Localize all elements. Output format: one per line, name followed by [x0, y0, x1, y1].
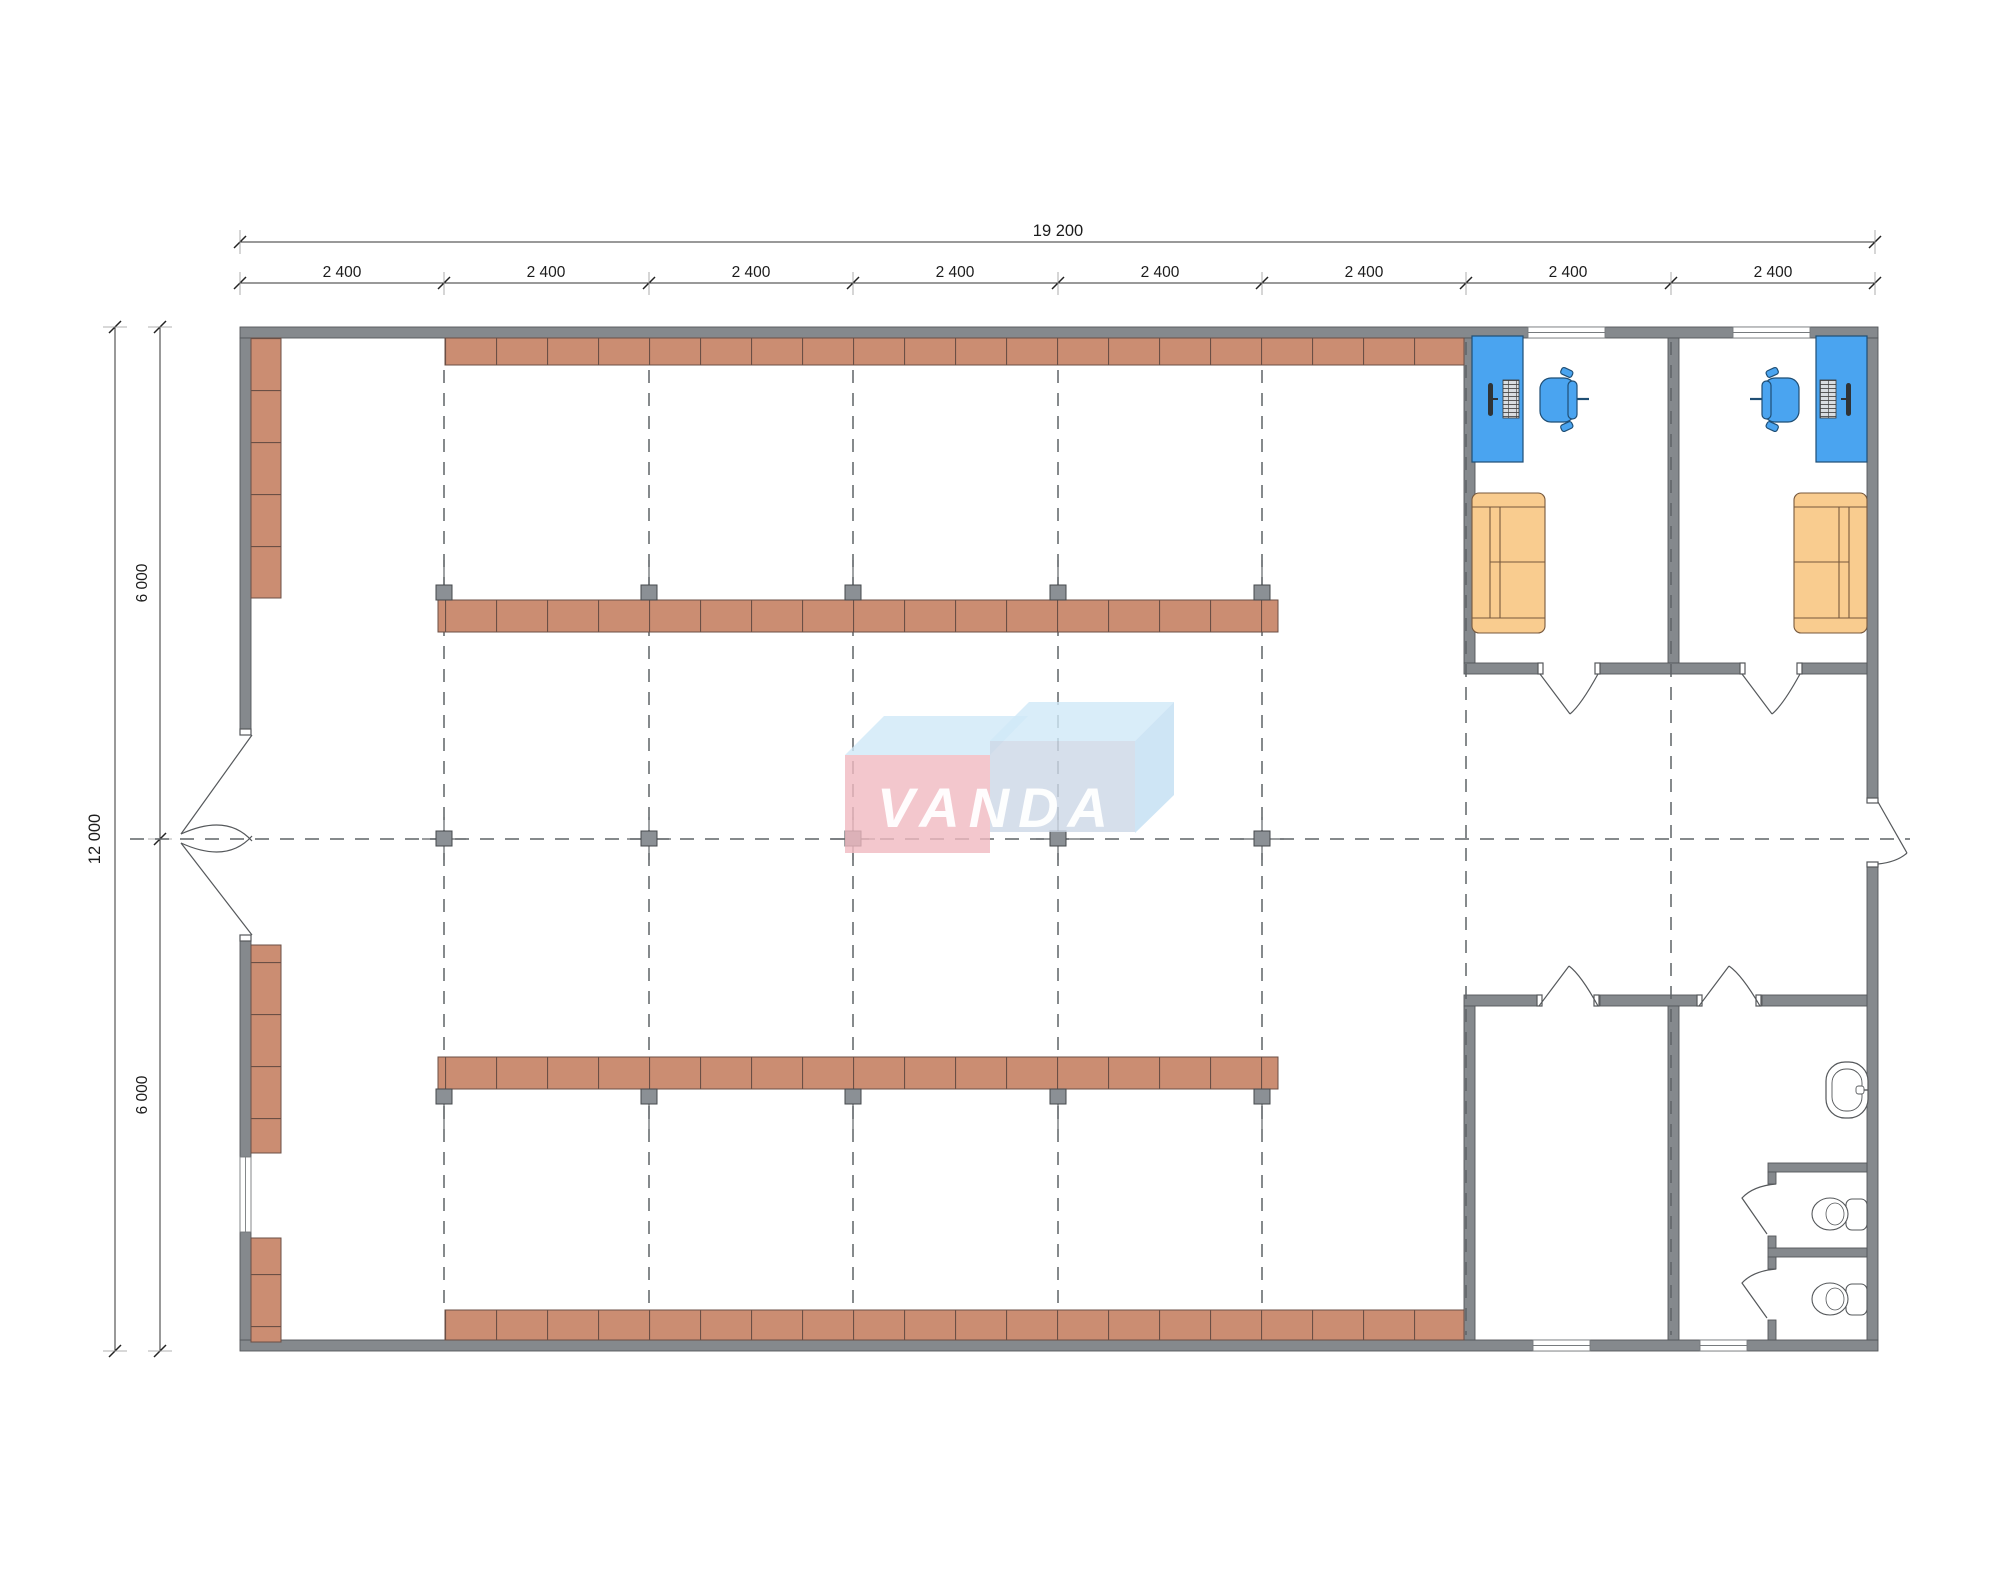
window-bottom-2	[1700, 1340, 1747, 1351]
wall-bottom-divider	[1668, 1006, 1679, 1340]
stall-2-stub-bottom	[1768, 1320, 1776, 1340]
wall-offices-bottom-a	[1464, 663, 1538, 674]
stall-1-stub-top	[1768, 1172, 1776, 1184]
stall-1-stub-bottom	[1768, 1236, 1776, 1248]
shelf-bottom-wall	[445, 1310, 1464, 1340]
shelf-island-lower	[438, 1057, 1278, 1089]
office1-furniture	[1472, 336, 1589, 633]
wall-bottomrooms-top-a	[1464, 995, 1537, 1006]
office1-sofa	[1472, 493, 1545, 633]
wall-top	[240, 327, 1878, 338]
office2-sofa	[1794, 493, 1867, 633]
window-office2	[1733, 327, 1810, 338]
wall-office-divider	[1668, 338, 1679, 663]
dim-seg-2: 2 400	[527, 264, 566, 281]
storage-door	[1537, 966, 1599, 1006]
wall-stall-2	[1768, 1248, 1867, 1257]
wall-offices-bottom-c	[1802, 663, 1867, 674]
wall-bottomrooms-top-c	[1762, 995, 1867, 1006]
dim-left-seg-2: 6 000	[134, 1075, 151, 1114]
shelf-island-upper	[438, 600, 1278, 632]
office1-chair	[1540, 367, 1589, 433]
office2-computer-icon	[1820, 380, 1851, 418]
wall-bottomrooms-top-b	[1600, 995, 1697, 1006]
office1-door	[1538, 663, 1600, 714]
dim-seg-7: 2 400	[1549, 264, 1588, 281]
windows	[240, 327, 1810, 1351]
dim-seg-4: 2 400	[936, 264, 975, 281]
dim-left-seg-1: 6 000	[134, 563, 151, 602]
shelf-left-lower	[251, 1238, 281, 1342]
stall-2-stub-top	[1768, 1257, 1776, 1269]
dim-seg-6: 2 400	[1345, 264, 1384, 281]
wall-right-upper	[1867, 338, 1878, 798]
wall-left-upper	[240, 338, 251, 729]
toilet-1-icon	[1812, 1198, 1867, 1230]
dim-seg-5: 2 400	[1141, 264, 1180, 281]
stall2-door	[1742, 1269, 1776, 1318]
wall-left-lower-a	[240, 941, 251, 1157]
office2-furniture	[1750, 336, 1867, 633]
floor-plan-page: 19 200 2 400 2 400 2 400 2 400 2 400 2 4…	[0, 0, 2000, 1574]
office1-computer-icon	[1488, 380, 1519, 418]
shelf-top-wall	[445, 338, 1464, 365]
wall-bottom	[240, 1340, 1878, 1351]
logo-text: VANDA	[877, 776, 1117, 839]
shelf-left-mid	[251, 945, 281, 1153]
sink-icon	[1826, 1062, 1868, 1118]
dim-seg-3: 2 400	[732, 264, 771, 281]
office2-chair	[1750, 367, 1799, 433]
wall-stall-1	[1768, 1163, 1867, 1172]
dim-seg-8: 2 400	[1754, 264, 1793, 281]
restroom-fixtures	[1812, 1062, 1868, 1315]
restroom-door	[1697, 966, 1761, 1006]
shelf-left-upper	[251, 338, 281, 598]
wall-left-lower-b	[240, 1232, 251, 1340]
toilet-2-icon	[1812, 1283, 1867, 1315]
entrance-double-door	[181, 729, 252, 941]
window-bottom-1	[1533, 1340, 1590, 1351]
office2-door	[1740, 663, 1802, 714]
dim-total-height: 12 000	[86, 814, 104, 864]
side-exit-door	[1867, 798, 1907, 867]
wall-offices-bottom-b	[1600, 663, 1740, 674]
floor-plan-drawing: 19 200 2 400 2 400 2 400 2 400 2 400 2 4…	[0, 0, 2000, 1574]
stall1-door	[1742, 1184, 1776, 1234]
dim-seg-1: 2 400	[323, 264, 362, 281]
vanda-watermark: VANDA	[845, 702, 1174, 853]
wall-right-lower	[1867, 867, 1878, 1340]
window-left	[240, 1157, 251, 1232]
window-office1	[1528, 327, 1605, 338]
dim-total-width: 19 200	[1033, 222, 1083, 240]
